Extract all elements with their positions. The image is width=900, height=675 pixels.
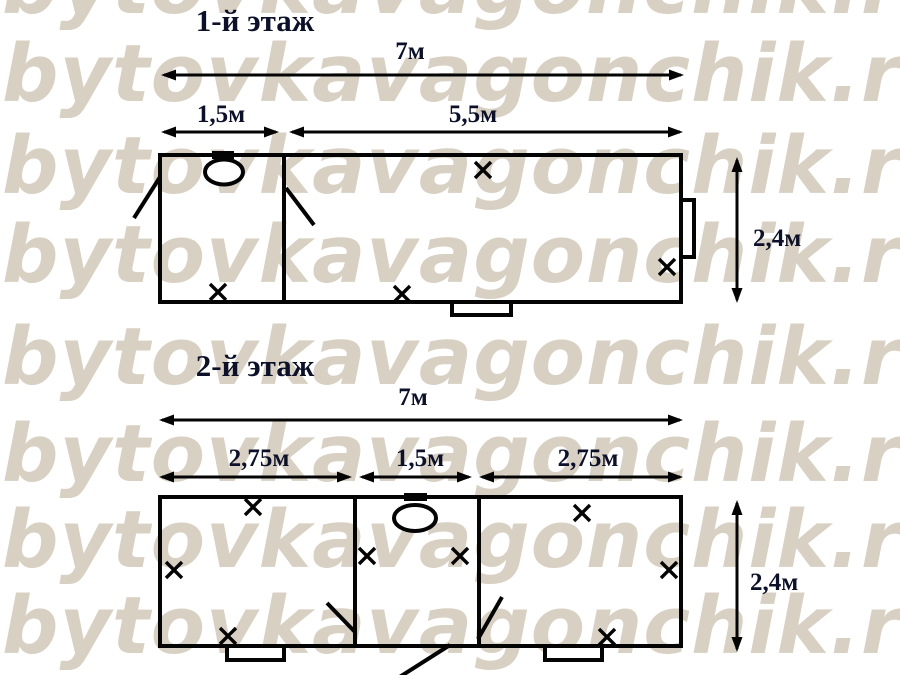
floor2-height-arrow [732, 500, 743, 652]
window-mark-icon [210, 284, 226, 300]
window-mark-icon [245, 499, 261, 515]
floor1-title: 1-й этаж [196, 3, 315, 38]
floor2-dim-left-arrow [159, 472, 352, 483]
floor1-dim-left-arrow [161, 127, 279, 138]
floor2-porch-step-left [227, 646, 284, 660]
floor2-right-room-door [478, 597, 502, 639]
floor1-dim-right-label: 5,5м [449, 101, 497, 128]
floor1-plan: 1-й этаж 7м 1,5м 5,5м [134, 3, 801, 315]
floor1-height-label: 2,4м [753, 225, 801, 252]
window-mark-icon [659, 259, 675, 275]
floor1-height-arrow [732, 157, 743, 303]
floor1-dim-left-label: 1,5м [197, 101, 245, 128]
floor2-dim-total-arrow [159, 415, 683, 426]
floor2-left-room-door [327, 603, 355, 632]
floor2-dim-middle-label: 1,5м [396, 445, 444, 472]
floor1-interior-door [286, 188, 314, 225]
floor2-dim-total-label: 7м [398, 384, 428, 411]
floor1-dim-total-label: 7м [395, 38, 425, 65]
floor2-dim-right-label: 2,75м [558, 445, 619, 472]
window-mark-icon [394, 286, 410, 302]
floor2-title: 2-й этаж [196, 348, 315, 383]
floor2-entrance-door [398, 645, 450, 675]
floor2-height-label: 2,4м [750, 569, 798, 596]
floor2-dim-middle-arrow [359, 472, 472, 483]
window-mark-icon [574, 505, 590, 521]
window-mark-icon [359, 548, 375, 564]
floor1-entrance-door [134, 177, 160, 218]
window-mark-icon [475, 162, 491, 178]
floor2-dim-left-label: 2,75м [229, 445, 290, 472]
page-root: bytovkavagonchik.ru bytovkavagonchik.ru … [0, 0, 900, 675]
floor2-porch-step-right [545, 646, 602, 660]
window-mark-icon [661, 562, 677, 578]
window-mark-icon [166, 562, 182, 578]
window-mark-icon [452, 548, 468, 564]
window-mark-icon [599, 629, 615, 645]
floor1-dim-total-arrow [161, 70, 684, 81]
floor2-plan: 2-й этаж 7м 2,75м 1,5м 2,75м [159, 348, 798, 675]
window-mark-icon [220, 628, 236, 644]
floorplan-svg: 1-й этаж 7м 1,5м 5,5м [0, 0, 900, 675]
floor1-dim-right-arrow [289, 127, 683, 138]
floor2-dim-right-arrow [479, 472, 683, 483]
